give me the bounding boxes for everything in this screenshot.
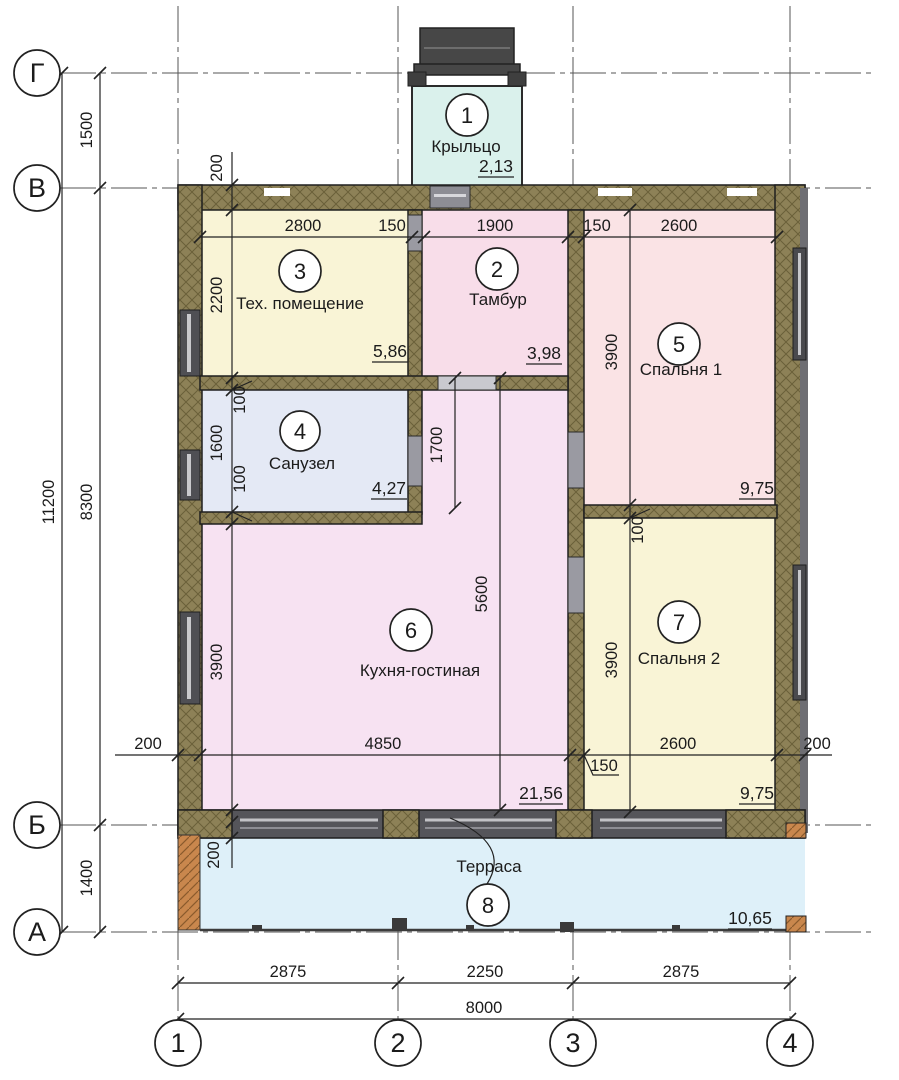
dim-left-total: 11200: [40, 480, 58, 525]
axis-row-v-label: В: [28, 173, 46, 203]
room-6-number: 6: [405, 618, 417, 643]
dim-kitchen-h: 3900: [208, 644, 226, 681]
room-7-number: 7: [673, 610, 685, 635]
room-6-name: Кухня-гостиная: [360, 661, 480, 680]
dim-wall-topleft: 200: [208, 154, 226, 182]
room-4-number: 4: [294, 419, 306, 444]
dim-top-tambur: 1900: [477, 217, 514, 235]
room-3-name: Тех. помещение: [236, 294, 364, 313]
dim-bed2-gap: 150: [590, 757, 618, 775]
room-3-number: 3: [294, 259, 306, 284]
room-8-number: 8: [482, 893, 494, 918]
room-1-number: 1: [461, 103, 473, 128]
axis-row-g-label: Г: [30, 58, 45, 88]
axis-col-4-label: 4: [782, 1028, 797, 1058]
room-4-name: Санузел: [269, 454, 335, 473]
dim-tech-h: 2200: [208, 277, 226, 314]
dim-top-gap1: 150: [378, 217, 406, 235]
dim-wall-left: 200: [134, 735, 162, 753]
room-2-area: 3,98: [527, 343, 561, 363]
floor-plan-page: Г В Б А 1 2 3 4 11200 1500 8300 1400 287…: [0, 0, 899, 1080]
dim-left-bot: 1400: [78, 860, 96, 897]
floor-plan-canvas: Г В Б А 1 2 3 4 11200 1500 8300 1400 287…: [0, 0, 899, 1080]
dim-bot-s2: 2250: [467, 963, 504, 981]
room-8-area: 10,65: [728, 908, 772, 928]
room-2-number: 2: [491, 257, 503, 282]
door-bath: [408, 436, 422, 486]
window-top-1: [264, 188, 290, 196]
room-6-area: 21,56: [519, 783, 563, 803]
dim-left-top: 1500: [78, 112, 96, 149]
wall-tambur-kitchen: [200, 376, 568, 390]
room-3-area: 5,86: [373, 341, 407, 361]
dim-top-bed1: 2600: [661, 217, 698, 235]
axis-row-b-label: Б: [28, 810, 46, 840]
room-1-area: 2,13: [479, 156, 513, 176]
dim-wall-terrace: 200: [205, 841, 223, 869]
axis-col-2-label: 2: [390, 1028, 405, 1058]
dim-bot-s3: 2875: [663, 963, 700, 981]
room-5-area: 9,75: [740, 478, 774, 498]
terrace-wood-strip: [178, 835, 200, 930]
door-tambur-kitchen: [438, 376, 496, 390]
dim-bath-h: 1600: [208, 425, 226, 462]
dim-bot-s1: 2875: [270, 963, 307, 981]
axis-col-3-label: 3: [565, 1028, 580, 1058]
dim-bot-total: 8000: [466, 999, 503, 1017]
room-1-name: Крыльцо: [431, 137, 500, 156]
axis-col-1-label: 1: [170, 1028, 185, 1058]
dim-kitchen-5600: 5600: [473, 576, 491, 613]
room-7-area: 9,75: [740, 783, 774, 803]
bottom-glazed-wall: [178, 810, 805, 838]
room-4-area: 4,27: [372, 478, 406, 498]
window-top-2: [598, 188, 632, 196]
wall-center-vertical: [568, 210, 584, 812]
dim-kitchen-w: 4850: [365, 735, 402, 753]
room-8-name: Терраса: [456, 857, 522, 876]
dim-wall-right: 200: [803, 735, 831, 753]
axis-row-a-label: А: [28, 917, 46, 947]
window-top-3: [727, 188, 757, 196]
dim-opening-1700: 1700: [428, 427, 446, 464]
dim-bed2-off: 100: [629, 516, 647, 544]
wall-bed1-bed2: [584, 505, 777, 518]
dim-top-tech: 2800: [285, 217, 322, 235]
terrace-post-mid: [392, 918, 407, 931]
wall-left: [178, 185, 202, 835]
dim-bath-off1: 100: [231, 386, 249, 414]
room-7-name: Спальня 2: [638, 649, 721, 668]
terrace-post-ne: [786, 823, 806, 838]
dim-bath-off2: 100: [231, 465, 249, 493]
dim-bed2-h: 3900: [603, 642, 621, 679]
porch-steps: [408, 28, 526, 86]
door-bed2: [568, 557, 584, 613]
room-5-name: Спальня 1: [640, 360, 723, 379]
door-bed1: [568, 432, 584, 488]
dim-top-gap2: 150: [583, 217, 611, 235]
dim-bed2-w: 2600: [660, 735, 697, 753]
room-2-name: Тамбур: [469, 290, 527, 309]
terrace-post-se: [786, 916, 806, 932]
dim-bed1-h: 3900: [603, 334, 621, 371]
room-5-number: 5: [673, 332, 685, 357]
terrace-post-mid2: [560, 922, 574, 932]
dim-left-mid: 8300: [78, 484, 96, 521]
